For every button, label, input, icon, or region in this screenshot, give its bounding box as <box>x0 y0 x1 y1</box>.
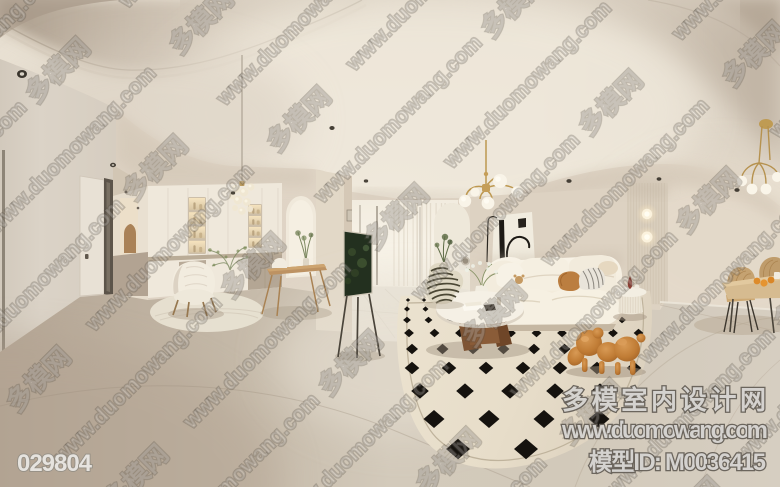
svg-text:029804: 029804 <box>17 450 93 477</box>
svg-text:www.duomowang.com: www.duomowang.com <box>561 417 768 444</box>
svg-text:多模室内设计网: 多模室内设计网 <box>562 385 766 415</box>
svg-text:模型ID: M0036415: 模型ID: M0036415 <box>589 449 766 476</box>
